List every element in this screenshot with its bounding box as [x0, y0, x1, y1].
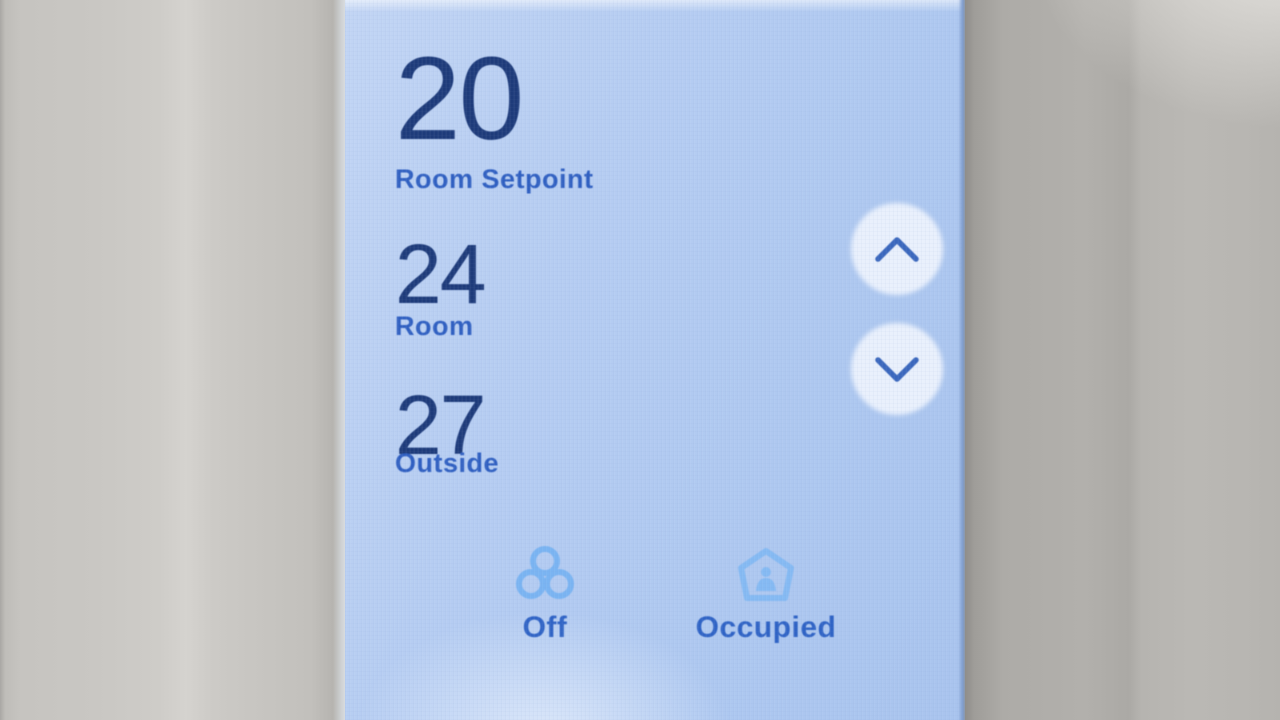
outside-temperature-label: Outside — [395, 449, 499, 479]
occupancy-control[interactable]: Occupied — [691, 546, 841, 645]
thermostat-touchscreen: 20 Room Setpoint 24 Room 27 Outside — [345, 0, 965, 720]
room-setpoint-value: 20 — [395, 40, 522, 158]
device-bezel-right — [965, 0, 1280, 720]
device-bezel-left — [0, 0, 345, 720]
room-setpoint-label: Room Setpoint — [395, 165, 593, 195]
fan-mode-label: Off — [475, 611, 615, 645]
room-temperature-label: Room — [395, 312, 474, 342]
chevron-up-icon — [875, 236, 919, 263]
occupancy-label: Occupied — [691, 611, 841, 645]
fan-mode-control[interactable]: Off — [475, 546, 615, 645]
chevron-down-icon — [875, 356, 919, 383]
setpoint-down-button[interactable] — [851, 323, 943, 415]
thermostat-photo-frame: 20 Room Setpoint 24 Room 27 Outside — [0, 0, 1280, 720]
home-occupied-icon — [691, 546, 841, 604]
room-temperature-value: 24 — [395, 232, 484, 316]
setpoint-up-button[interactable] — [851, 203, 943, 295]
fan-icon — [475, 546, 615, 604]
screen-edge-shadow — [958, 0, 965, 720]
